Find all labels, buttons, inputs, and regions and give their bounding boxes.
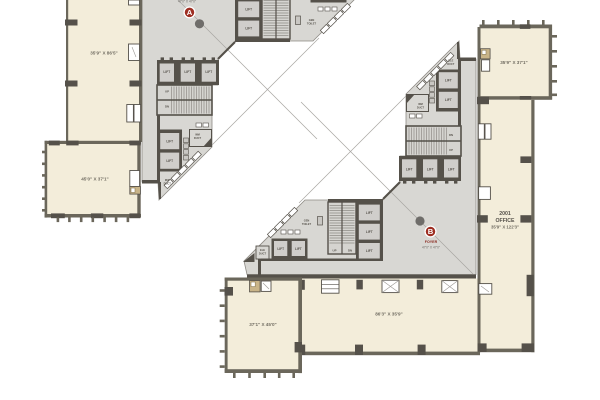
svg-text:DN: DN <box>165 105 169 109</box>
svg-text:47'0" X 47'0": 47'0" X 47'0" <box>422 245 440 249</box>
svg-text:LIFT: LIFT <box>184 70 191 74</box>
svg-text:DN: DN <box>449 133 453 137</box>
svg-text:LIFT: LIFT <box>448 168 455 172</box>
svg-text:LIFT: LIFT <box>366 230 373 234</box>
svg-text:37'1" X 45'0": 37'1" X 45'0" <box>249 322 277 327</box>
svg-text:DN: DN <box>348 249 352 253</box>
svg-text:86'3" X 35'9": 86'3" X 35'9" <box>375 312 403 317</box>
svg-text:LIFT: LIFT <box>445 98 452 102</box>
svg-text:LIFT: LIFT <box>366 211 373 215</box>
svg-text:UP: UP <box>165 90 169 94</box>
svg-text:UP: UP <box>333 249 337 253</box>
svg-text:DUCT: DUCT <box>259 251 267 255</box>
svg-text:35'9" X 37'1": 35'9" X 37'1" <box>500 60 528 65</box>
svg-text:LIFT: LIFT <box>427 168 434 172</box>
svg-text:45'0" X 37'1": 45'0" X 37'1" <box>81 177 109 182</box>
svg-text:LIFT: LIFT <box>166 139 173 143</box>
svg-text:A: A <box>187 8 193 17</box>
svg-text:DUCT: DUCT <box>447 62 455 66</box>
svg-text:LIFT: LIFT <box>295 247 302 251</box>
svg-text:LIFT: LIFT <box>245 8 252 12</box>
svg-text:LIFT: LIFT <box>445 79 452 83</box>
svg-text:DUCT: DUCT <box>194 136 202 140</box>
svg-text:LIFT: LIFT <box>366 249 373 253</box>
svg-text:35'9" X 86'5": 35'9" X 86'5" <box>90 51 118 56</box>
svg-text:LIFT: LIFT <box>205 70 212 74</box>
svg-text:OFFICE: OFFICE <box>495 218 515 224</box>
svg-text:LIFT: LIFT <box>163 70 170 74</box>
svg-text:47'0" X 47'0": 47'0" X 47'0" <box>178 0 196 4</box>
svg-text:LIFT: LIFT <box>406 168 413 172</box>
svg-text:LIFT: LIFT <box>166 159 173 163</box>
svg-text:FOYER: FOYER <box>425 240 438 244</box>
svg-text:35'9" X 122'3": 35'9" X 122'3" <box>491 225 519 230</box>
svg-text:2001: 2001 <box>499 211 511 217</box>
svg-text:B: B <box>428 227 434 236</box>
svg-text:DUCT: DUCT <box>164 181 172 185</box>
svg-text:LIFT: LIFT <box>245 27 252 31</box>
svg-text:TOILET: TOILET <box>307 21 317 25</box>
svg-text:TOILET: TOILET <box>302 222 312 226</box>
svg-text:DUCT: DUCT <box>417 105 425 109</box>
svg-text:LIFT: LIFT <box>277 247 284 251</box>
svg-text:UP: UP <box>449 148 453 152</box>
